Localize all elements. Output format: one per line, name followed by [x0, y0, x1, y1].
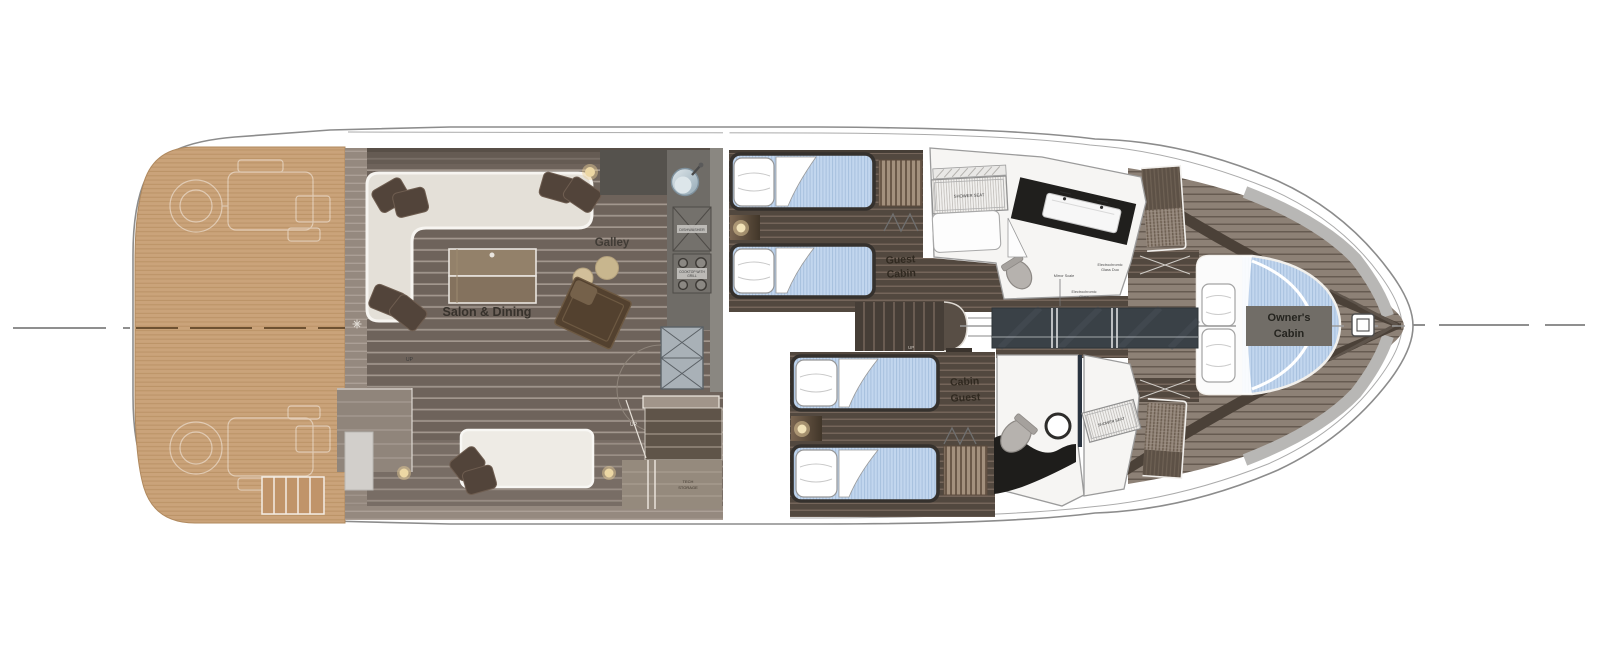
svg-text:Guest: Guest: [885, 253, 916, 267]
svg-text:Owner's: Owner's: [1268, 312, 1311, 324]
svg-text:DISHWASHER: DISHWASHER: [679, 228, 705, 232]
svg-text:Cabin: Cabin: [950, 375, 980, 389]
svg-text:UP: UP: [630, 422, 638, 428]
svg-text:Cabin: Cabin: [886, 267, 916, 281]
svg-text:TECH: TECH: [683, 479, 694, 484]
svg-text:STORAGE: STORAGE: [678, 485, 698, 490]
svg-text:Electrochromic: Electrochromic: [1071, 290, 1096, 294]
svg-text:Salon & Dining: Salon & Dining: [443, 305, 532, 319]
svg-text:Glass Duo: Glass Duo: [1101, 268, 1119, 272]
svg-text:Guest: Guest: [950, 391, 981, 405]
svg-text:Cabin: Cabin: [1274, 328, 1305, 340]
svg-text:Mirror Scale: Mirror Scale: [1054, 274, 1074, 278]
svg-text:Electrochromic: Electrochromic: [1097, 263, 1122, 267]
svg-text:GRILL: GRILL: [687, 274, 697, 278]
svg-text:UP: UP: [406, 357, 414, 363]
svg-text:Glass: Glass: [1079, 295, 1089, 299]
svg-text:Galley: Galley: [595, 237, 630, 249]
svg-text:UP: UP: [908, 345, 914, 350]
